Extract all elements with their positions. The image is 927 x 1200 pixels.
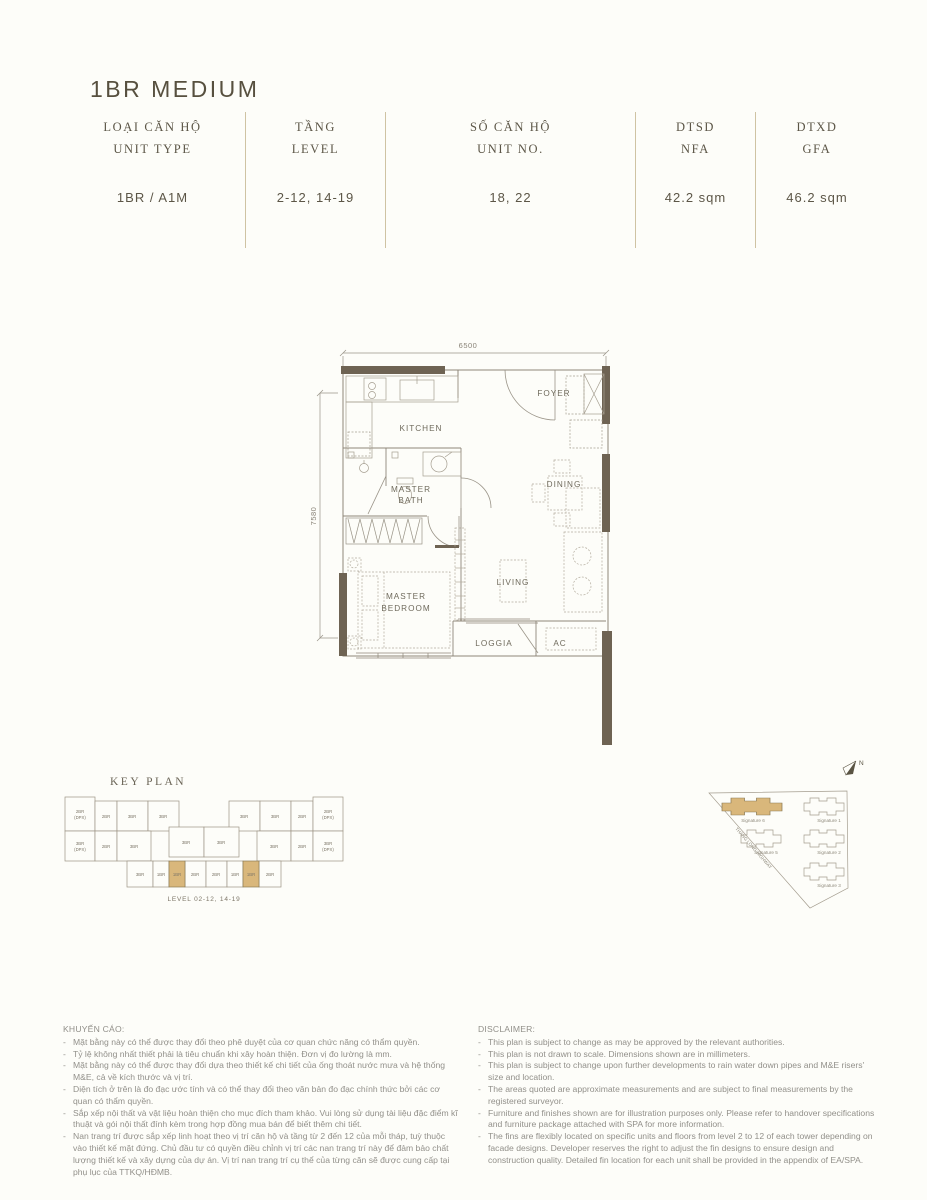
note-item: - Furniture and finishes shown are for i… <box>478 1108 876 1132</box>
building-label-signature-1: Signature 1 <box>817 818 841 823</box>
keyplan-unit-sub: (DPX) <box>74 815 86 820</box>
keyplan-diagram: 2BR (DPX) 2BR 3BR 3BR 3BR 3BR 2BR 2BR (D… <box>63 795 345 913</box>
note-item: - This plan is subject to change upon fu… <box>478 1060 876 1084</box>
bullet-dash: - <box>63 1084 73 1108</box>
keyplan-unit-label: 2BR <box>266 872 274 877</box>
living-furniture <box>500 488 602 612</box>
foyer-closet <box>566 374 604 448</box>
note-text: This plan is subject to change upon furt… <box>488 1060 876 1084</box>
building-signature-6 <box>722 798 782 815</box>
note-text: This plan is not drawn to scale. Dimensi… <box>488 1049 876 1061</box>
spec-col-unit-type: LOẠI CĂN HỘ UNIT TYPE 1BR / A1M <box>60 112 245 248</box>
disclaimer-title: DISCLAIMER: <box>478 1024 876 1036</box>
keyplan-unit-label: 3BR <box>136 872 144 877</box>
dim-width-label: 6500 <box>459 341 478 350</box>
note-text: Tỷ lệ không nhất thiết phải là tiêu chuẩ… <box>73 1049 461 1061</box>
spec-value: 18, 22 <box>386 190 635 205</box>
keyplan-unit-label: 2BR <box>102 844 110 849</box>
keyplan-unit-label: 2BR <box>212 872 220 877</box>
room-label-dining: DINING <box>547 480 582 489</box>
keyplan-level-label: LEVEL 02-12, 14-19 <box>167 896 240 903</box>
bullet-dash: - <box>478 1108 488 1132</box>
bullet-dash: - <box>478 1037 488 1049</box>
keyplan-unit-sub: (DPX) <box>322 815 334 820</box>
room-label-ac: AC <box>553 639 566 648</box>
spec-value: 42.2 sqm <box>636 190 755 205</box>
road-label: THANG LONG HIGHWAY <box>734 826 773 869</box>
keyplan-unit-label: 2BR <box>298 844 306 849</box>
building-label-signature-5: Signature 5 <box>754 850 778 855</box>
room-label-loggia: LOGGIA <box>475 639 512 648</box>
disclaimer-english: DISCLAIMER: - This plan is subject to ch… <box>478 1024 876 1167</box>
dim-height-label: 7580 <box>309 507 318 526</box>
keyplan-unit-label: 2BR <box>191 872 199 877</box>
note-text: Nan trang trí được sắp xếp linh hoạt the… <box>73 1131 461 1178</box>
bullet-dash: - <box>478 1060 488 1084</box>
note-item: - Nan trang trí được sắp xếp linh hoạt t… <box>63 1131 461 1178</box>
site-buildings <box>722 798 844 880</box>
spec-label-en: NFA <box>636 138 755 160</box>
keyplan-unit-label: 2BR <box>102 814 110 819</box>
room-label-foyer: FOYER <box>537 389 570 398</box>
note-text: Mặt bằng này có thể được thay đổi theo p… <box>73 1037 461 1049</box>
keyplan-unit-label-highlighted: 1BR <box>173 872 181 877</box>
note-item: - This plan is not drawn to scale. Dimen… <box>478 1049 876 1061</box>
note-text: Furniture and finishes shown are for ill… <box>488 1108 876 1132</box>
notes-vietnamese: KHUYẾN CÁO: - Mặt bằng này có thể được t… <box>63 1024 461 1178</box>
room-label-master-bath-2: BATH <box>398 496 423 505</box>
bullet-dash: - <box>63 1037 73 1049</box>
spec-col-nfa: DTSD NFA 42.2 sqm <box>635 112 755 248</box>
note-item: - Sắp xếp nội thất và vật liệu hoàn thiệ… <box>63 1108 461 1132</box>
room-label-master-bedroom-1: MASTER <box>386 592 426 601</box>
spec-label-vi: LOẠI CĂN HỘ <box>60 116 245 138</box>
spec-col-level: TẦNG LEVEL 2-12, 14-19 <box>245 112 385 248</box>
building-label-signature-3: Signature 3 <box>817 883 841 888</box>
building-signature-1 <box>804 798 844 815</box>
floor-plan: 6500 7580 <box>308 336 642 752</box>
note-item: - Mặt bằng này có thể được thay đổi theo… <box>63 1037 461 1049</box>
spec-label-vi: DTXD <box>756 116 878 138</box>
keyplan-boxes <box>65 797 343 887</box>
keyplan-unit-label: 3BR <box>240 814 248 819</box>
keyplan-unit-label: 3BR <box>271 814 279 819</box>
wardrobe <box>346 518 422 544</box>
spec-label-en: LEVEL <box>246 138 385 160</box>
building-signature-3 <box>804 863 844 880</box>
bullet-dash: - <box>63 1108 73 1132</box>
note-text: This plan is subject to change as may be… <box>488 1037 876 1049</box>
note-text: Mặt bằng này có thể được thay đổi dựa th… <box>73 1060 461 1084</box>
spec-label-en: UNIT TYPE <box>60 138 245 160</box>
spec-label-vi: DTSD <box>636 116 755 138</box>
keyplan-unit-sub: (DPX) <box>74 847 86 852</box>
page-title: 1BR MEDIUM <box>90 76 259 103</box>
bullet-dash: - <box>478 1084 488 1108</box>
keyplan-unit-label: 2BR <box>76 809 84 814</box>
keyplan-unit-label: 3BR <box>128 814 136 819</box>
keyplan-unit-label: 3BR <box>130 844 138 849</box>
spec-value: 46.2 sqm <box>756 190 878 205</box>
note-item: - Mặt bằng này có thể được thay đổi dựa … <box>63 1060 461 1084</box>
kitchen-fixtures <box>346 376 458 458</box>
bullet-dash: - <box>478 1049 488 1061</box>
note-item: - Diện tích ở trên là đo đạc ước tính và… <box>63 1084 461 1108</box>
door-threshold <box>435 545 459 548</box>
keyplan-unit-label: 3BR <box>76 841 84 846</box>
north-label: N <box>859 760 864 767</box>
keyplan-unit-label: 3BR <box>324 841 332 846</box>
note-text: The fins are flexibly located on specifi… <box>488 1131 876 1166</box>
note-text: The areas quoted are approximate measure… <box>488 1084 876 1108</box>
spec-label-vi: SỐ CĂN HỘ <box>386 116 635 138</box>
note-item: - The areas quoted are approximate measu… <box>478 1084 876 1108</box>
note-item: - The fins are flexibly located on speci… <box>478 1131 876 1166</box>
dining-set <box>532 460 582 526</box>
keyplan-unit-label: 2BR <box>298 814 306 819</box>
room-label-living: LIVING <box>497 578 530 587</box>
keyplan-unit-label: 3BR <box>182 840 190 845</box>
bullet-dash: - <box>478 1131 488 1166</box>
keyplan-unit-label: 3BR <box>159 814 167 819</box>
spec-col-gfa: DTXD GFA 46.2 sqm <box>755 112 878 248</box>
spec-col-unit-no: SỐ CĂN HỘ UNIT NO. 18, 22 <box>385 112 635 248</box>
note-text: Diện tích ở trên là đo đạc ước tính và c… <box>73 1084 461 1108</box>
accent-walls <box>339 366 612 745</box>
keyplan-unit-label: 1BR <box>231 872 239 877</box>
building-signature-2 <box>804 830 844 847</box>
unit-spec-table: LOẠI CĂN HỘ UNIT TYPE 1BR / A1M TẦNG LEV… <box>60 112 878 248</box>
site-plan: N THANG LONG HIGHWAY Signature 6 Signatu… <box>683 755 895 925</box>
compass: N <box>843 760 864 775</box>
keyplan-unit-label: 3BR <box>270 844 278 849</box>
bullet-dash: - <box>63 1131 73 1178</box>
keyplan-title: KEY PLAN <box>110 776 186 788</box>
building-label-signature-6: Signature 6 <box>741 818 765 823</box>
spec-label-en: GFA <box>756 138 878 160</box>
room-label-master-bath-1: MASTER <box>391 485 431 494</box>
keyplan-unit-label: 1BR <box>157 872 165 877</box>
spec-label-vi: TẦNG <box>246 116 385 138</box>
notes-vi-title: KHUYẾN CÁO: <box>63 1024 461 1036</box>
building-label-signature-2: Signature 2 <box>817 850 841 855</box>
keyplan-unit-label: 3BR <box>217 840 225 845</box>
room-label-kitchen: KITCHEN <box>400 424 443 433</box>
note-text: Sắp xếp nội thất và vật liệu hoàn thiện … <box>73 1108 461 1132</box>
spec-value: 2-12, 14-19 <box>246 190 385 205</box>
spec-label-en: UNIT NO. <box>386 138 635 160</box>
room-label-master-bedroom-2: BEDROOM <box>381 604 430 613</box>
keyplan-unit-sub: (DPX) <box>322 847 334 852</box>
bullet-dash: - <box>63 1060 73 1084</box>
note-item: - Tỷ lệ không nhất thiết phải là tiêu ch… <box>63 1049 461 1061</box>
spec-value: 1BR / A1M <box>60 190 245 205</box>
keyplan-unit-label: 2BR <box>324 809 332 814</box>
bullet-dash: - <box>63 1049 73 1061</box>
note-item: - This plan is subject to change as may … <box>478 1037 876 1049</box>
brochure-page: 1BR MEDIUM LOẠI CĂN HỘ UNIT TYPE 1BR / A… <box>0 0 927 1200</box>
keyplan-unit-label-highlighted: 1BR <box>247 872 255 877</box>
tv-console <box>455 528 465 620</box>
